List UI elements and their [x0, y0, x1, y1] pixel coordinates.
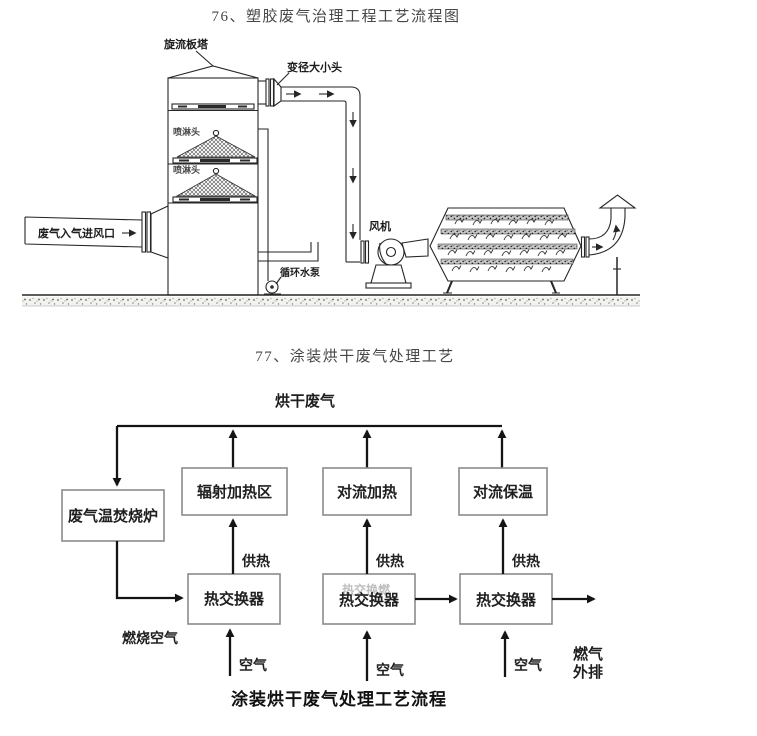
carbon-layer-4 [441, 259, 573, 264]
outlet-flange [266, 79, 269, 106]
tower-tray-1 [168, 104, 258, 111]
heat-exchanger-2-label: 热交换器 [339, 591, 400, 609]
spray-head-1-label: 喷淋头 [173, 126, 200, 137]
circulating-pump-label: 循环水泵 [280, 266, 321, 279]
carbon-layer-3 [438, 244, 577, 249]
exhaust-label-line2: 外排 [572, 663, 603, 681]
outlet-duct [258, 79, 360, 262]
stack-inner-line [589, 212, 611, 239]
carbon-layer-2 [441, 229, 575, 234]
heat-supply-label-1: 供热 [241, 553, 270, 570]
tower-tray-3 [168, 197, 258, 203]
incinerator-label: 废气温焚烧炉 [68, 507, 158, 525]
duct-inner-line [281, 101, 346, 262]
air-label-2: 空气 [376, 662, 404, 679]
cyclone-tower-label: 旋流板塔 [163, 37, 209, 51]
circulating-water-system: 循环水泵 [258, 129, 321, 294]
exhaust-label-line1: 燃气 [573, 645, 603, 663]
figure77-title: 77、涂装烘干废气处理工艺 [255, 348, 455, 365]
pump-leader-line [276, 277, 281, 284]
tower-tray-2 [168, 158, 258, 164]
heat-supply-label-3: 供热 [511, 553, 540, 570]
convection-heating-label: 对流加热 [337, 483, 397, 501]
drying-gas-label: 烘干废气 [275, 392, 335, 410]
figure76-title: 76、塑胶废气治理工程工艺流程图 [211, 8, 460, 25]
stack-outer-line [589, 212, 625, 255]
inlet-duct: 废气入气进风口 [25, 206, 168, 258]
cyclone-tower-leader-line [196, 51, 213, 66]
heat-supply-label-2: 供热 [375, 553, 404, 570]
rain-cap [600, 195, 635, 208]
diagram-svg: 76、塑胶废气治理工程工艺流程图 旋流板塔 [0, 0, 757, 736]
heat-exchanger-3-label: 热交换器 [476, 591, 537, 609]
figure77: 77、涂装烘干废气处理工艺 烘干废气 废气温焚烧炉 辐射加热区 对流加热 对流保… [62, 348, 603, 709]
fan-label: 风机 [369, 219, 391, 233]
incinerator-to-hx1-arrow [117, 541, 182, 598]
adsorber-legs [447, 281, 556, 293]
combustion-air-label: 燃烧空气 [122, 630, 178, 647]
tower-roof [168, 66, 258, 78]
reducer-label: 变径大小头 [287, 60, 342, 74]
fan: 风机 [361, 219, 428, 288]
scrubber-tower: 喷淋头 喷淋头 [168, 66, 258, 295]
gas-inlet-label: 废气入气进风口 [38, 226, 115, 240]
document-page: 76、塑胶废气治理工程工艺流程图 旋流板塔 [0, 0, 757, 736]
carbon-layer-1 [446, 215, 568, 220]
reducer-leader-line [277, 73, 289, 85]
convection-holding-label: 对流保温 [473, 483, 533, 501]
radiant-zone-label: 辐射加热区 [197, 483, 272, 501]
spray-head-2-label: 喷淋头 [173, 164, 200, 175]
adsorber-housing [430, 208, 581, 293]
figure76: 76、塑胶废气治理工程工艺流程图 旋流板塔 [22, 8, 640, 306]
air-label-3: 空气 [514, 657, 542, 674]
air-label-1: 空气 [239, 657, 267, 674]
figure77-caption: 涂装烘干废气处理工艺流程 [231, 689, 447, 709]
sump-pipes [258, 242, 318, 261]
fan-outlet [402, 239, 428, 257]
stack-arrow-up [613, 226, 616, 240]
reducer [274, 79, 281, 106]
ground [22, 295, 640, 306]
exhaust-stack [582, 195, 636, 295]
duct-outer-line [281, 87, 360, 240]
fan-pedestal [371, 265, 406, 283]
water-downpipe [258, 129, 268, 281]
heat-exchanger-1-label: 热交换器 [204, 590, 265, 608]
